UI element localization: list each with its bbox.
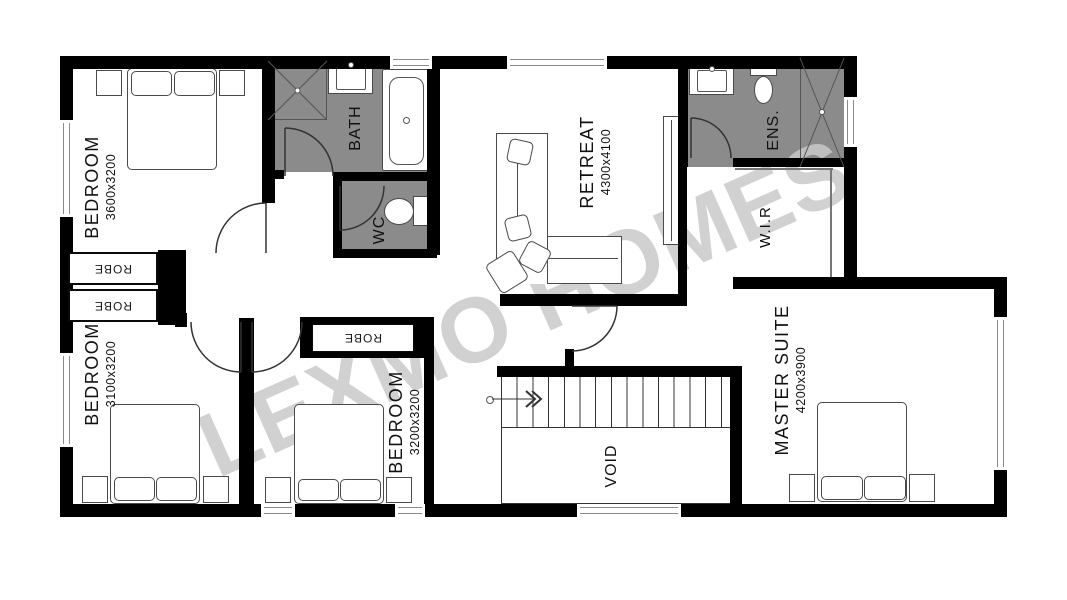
- wall-segment: [678, 56, 688, 167]
- door-arc: [191, 322, 241, 372]
- pillow: [174, 71, 215, 96]
- window: [390, 56, 432, 69]
- side-table: [909, 474, 935, 502]
- window: [261, 504, 295, 517]
- wall-segment: [424, 317, 434, 504]
- window: [577, 504, 681, 517]
- window: [395, 504, 425, 517]
- robe-3: ROBE: [312, 324, 414, 352]
- room-name: RETREAT: [577, 115, 598, 208]
- wall-segment: [333, 181, 342, 257]
- stair-arrow-origin: [486, 396, 494, 404]
- wall-segment: [262, 56, 275, 203]
- shower-screen: [800, 58, 801, 167]
- window: [60, 353, 73, 447]
- side-table: [789, 474, 815, 502]
- robe-1: ROBE: [68, 252, 158, 285]
- side-table: [219, 70, 245, 96]
- pillow: [821, 476, 863, 500]
- pillow: [340, 479, 381, 501]
- toilet-bowl: [754, 76, 773, 104]
- wall-segment: [844, 56, 857, 289]
- pillow: [156, 477, 197, 501]
- side-table: [82, 476, 108, 503]
- drain-dot: [403, 117, 410, 124]
- wall-segment: [497, 366, 740, 377]
- pillow: [131, 71, 172, 96]
- sink-basin: [336, 66, 366, 90]
- window: [844, 97, 857, 147]
- pillow: [298, 479, 339, 501]
- window: [994, 317, 1007, 470]
- robe-label: ROBE: [344, 331, 382, 345]
- side-table: [265, 477, 291, 503]
- wall-segment: [994, 470, 1007, 517]
- sofa-seam: [548, 258, 618, 259]
- void-outline: [501, 427, 737, 504]
- robe-label: ROBE: [94, 262, 132, 276]
- room-name: MASTER SUITE: [772, 305, 793, 456]
- wir-shelf: [830, 170, 832, 278]
- wall-segment: [333, 249, 437, 258]
- wall-segment: [60, 504, 1007, 517]
- wall-segment: [733, 158, 844, 167]
- wall-segment: [678, 167, 687, 306]
- cabinet-line: [671, 120, 672, 241]
- floor-plan: LEXMO HOMES: [0, 0, 1067, 600]
- robe-2: ROBE: [68, 289, 158, 322]
- toilet-bowl: [384, 198, 414, 225]
- faucet-dot: [709, 66, 715, 72]
- wall-segment: [239, 318, 254, 504]
- faucet-dot: [348, 62, 354, 68]
- wall-segment: [175, 313, 187, 327]
- room-dimensions: 3600x3200: [104, 154, 118, 220]
- staircase: [501, 377, 737, 427]
- wall-segment: [733, 277, 1007, 289]
- cushion: [506, 138, 534, 166]
- robe-label: ROBE: [94, 299, 132, 313]
- wall-segment: [994, 277, 1007, 317]
- wall-segment: [60, 56, 857, 69]
- side-table: [386, 477, 412, 503]
- wir-shelf: [735, 168, 833, 170]
- sink-basin: [697, 70, 727, 92]
- room-dimensions: 3100x3200: [104, 341, 118, 407]
- pillow: [114, 477, 155, 501]
- wall-segment: [427, 56, 440, 255]
- room-dimensions: 4200x3900: [794, 347, 808, 413]
- window: [507, 56, 607, 69]
- door-arc: [216, 203, 266, 253]
- room-name: BEDROOM: [82, 322, 103, 426]
- side-table: [203, 476, 229, 503]
- room-name: BEDROOM: [82, 135, 103, 239]
- pillow: [864, 476, 906, 500]
- wall-segment: [500, 294, 685, 306]
- wall-segment: [333, 172, 437, 181]
- shower: [268, 61, 327, 120]
- wall-segment: [262, 170, 284, 179]
- side-table: [96, 70, 122, 96]
- room-dimensions: 4300x4100: [599, 129, 613, 195]
- wall-segment: [730, 366, 742, 504]
- window: [60, 120, 73, 217]
